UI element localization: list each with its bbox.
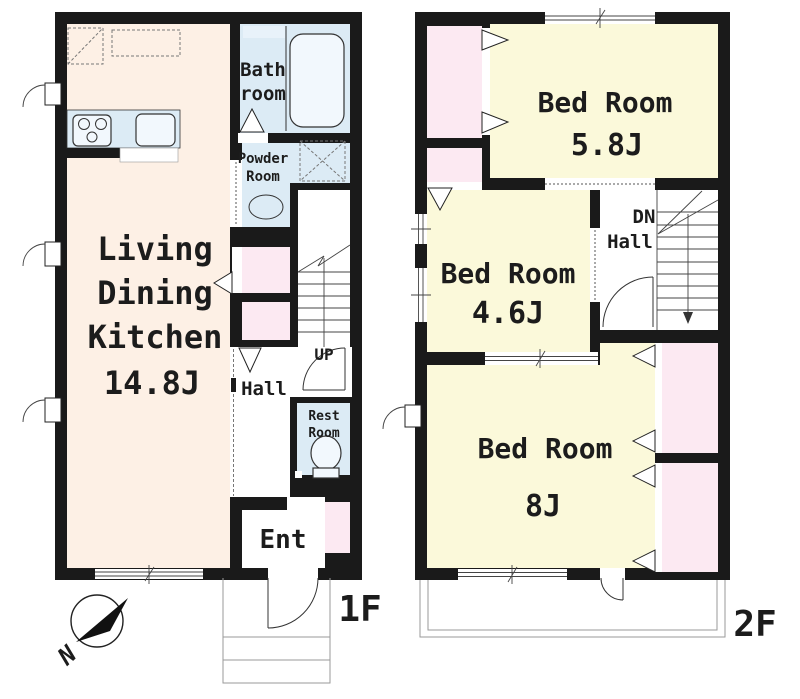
porch-outline — [223, 578, 330, 683]
powder-label-line1: Powder — [238, 151, 289, 167]
hall-1f-label: Hall — [241, 378, 287, 400]
stove-icon — [73, 115, 111, 146]
floor-2f-label: 2F — [733, 604, 776, 645]
counter-return — [120, 148, 178, 162]
closet-2f-b — [427, 148, 482, 182]
closet-2f-d — [662, 463, 718, 572]
bathtub-icon — [290, 34, 344, 127]
floor-1f-label: 1F — [338, 589, 381, 630]
entrance-door — [268, 568, 318, 628]
closet-1f-a — [242, 247, 290, 293]
porch-steps — [223, 578, 330, 683]
bath-door-gap — [238, 133, 268, 143]
window-swing-arc — [23, 85, 45, 107]
ldk-label-line1: Living — [97, 230, 213, 268]
door-swing-arc — [268, 578, 318, 628]
kitchen-counter — [67, 110, 180, 162]
window — [485, 352, 598, 365]
bedroom-8-size: 8J — [525, 489, 561, 524]
door-swing-arc — [601, 578, 623, 600]
room-bedroom-8 — [427, 365, 655, 568]
toilet-icon — [311, 436, 341, 470]
bedroom-4-6-size: 4.6J — [472, 296, 544, 331]
floor-2f: Bed Room 5.8J Bed Room 4.6J DN Hall Bed … — [383, 8, 777, 645]
bedroom-5-8-size: 5.8J — [571, 128, 643, 163]
toilet-tank — [313, 468, 339, 478]
bedroom-4-6-label: Bed Room — [441, 257, 576, 290]
porch-step-lines — [223, 637, 330, 660]
stairs-area-2f — [657, 190, 718, 330]
balcony-inner-rail — [428, 580, 717, 630]
casement-window-2f — [383, 405, 421, 429]
closet-1f-b — [242, 302, 290, 340]
closet-sliding-door — [232, 247, 242, 293]
door-gap — [268, 568, 318, 580]
closet-2f-c — [662, 343, 718, 453]
window-swing-arc — [23, 244, 45, 266]
bathroom-label-line2: room — [240, 83, 286, 105]
closet-2f-a — [427, 26, 482, 138]
entrance-label: Ent — [260, 525, 307, 555]
closet-sliding-door — [655, 343, 662, 453]
window-icon — [45, 83, 61, 105]
compass-north-label: N — [52, 640, 83, 672]
balcony-outer-rail — [420, 580, 725, 637]
balcony — [420, 580, 725, 637]
shoe-cabinet — [325, 502, 350, 553]
stairs-down-label: DN — [633, 206, 656, 228]
counter-wall — [67, 148, 120, 158]
ldk-hall-post — [231, 378, 236, 392]
floorplan-image: N Living Dining Kitchen 14.8J Bath room … — [0, 0, 800, 699]
window-icon — [45, 242, 61, 266]
door-gap — [600, 568, 625, 580]
restroom-label-line2: Room — [308, 426, 339, 441]
powder-label-line2: Room — [246, 169, 280, 185]
entrance-step — [287, 497, 325, 510]
bath-counter — [243, 26, 285, 38]
window-swing-arc — [383, 407, 405, 429]
floor-1f: N Living Dining Kitchen 14.8J Bath room … — [23, 12, 382, 683]
hall-lower-1f — [230, 397, 290, 497]
restroom-label-line1: Rest — [308, 409, 339, 424]
restroom-corner — [295, 471, 302, 478]
ldk-label-line3: Kitchen — [88, 318, 223, 356]
ldk-size-label: 14.8J — [104, 364, 200, 402]
ldk-label-line2: Dining — [97, 274, 213, 312]
window-swing-arc — [23, 400, 45, 422]
bedroom-8-label: Bed Room — [478, 432, 613, 465]
bedroom-5-8-label: Bed Room — [538, 86, 673, 119]
closet-sliding-door — [655, 463, 662, 572]
stairs-up-label: UP — [314, 345, 333, 364]
bathroom-label-line1: Bath — [240, 59, 286, 81]
window-icon — [45, 398, 61, 422]
hall-2f-label: Hall — [607, 231, 653, 253]
window-icon — [405, 405, 421, 427]
balcony-door — [600, 568, 625, 600]
floorplan-svg: N Living Dining Kitchen 14.8J Bath room … — [0, 0, 800, 699]
compass-icon: N — [52, 595, 128, 671]
kitchen-sink-icon — [136, 114, 175, 146]
